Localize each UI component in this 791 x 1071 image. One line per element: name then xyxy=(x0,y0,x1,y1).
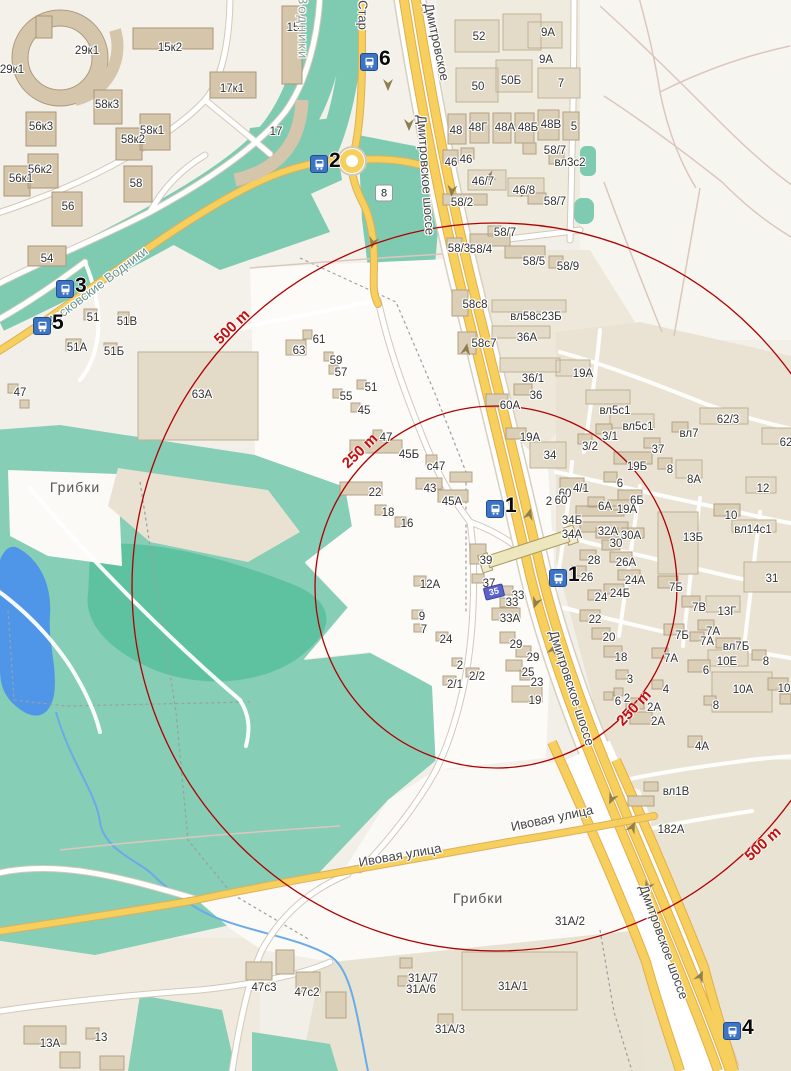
building-label: 34Б xyxy=(562,515,582,527)
bus-icon xyxy=(549,569,567,587)
building-label: 51Б xyxy=(104,346,124,358)
building-label: 6 xyxy=(617,478,623,490)
building-label: 8 xyxy=(713,700,719,712)
building-label: вл58с23Б xyxy=(510,311,561,323)
building-label: 9 xyxy=(419,611,425,623)
building-label: 7 xyxy=(421,624,427,636)
building-label: 58/7 xyxy=(494,227,516,239)
building-label: 17 xyxy=(270,126,283,138)
building-label: 51 xyxy=(365,382,378,394)
building-label: 36 xyxy=(530,390,543,402)
building-label: 59 xyxy=(330,355,343,367)
bus-icon xyxy=(310,155,328,173)
building-label: 18 xyxy=(615,652,628,664)
building-label: 46 xyxy=(460,154,473,166)
street-label: Ивовая улица xyxy=(357,840,442,869)
building-label: 16 xyxy=(401,518,414,530)
building-label: 28 xyxy=(588,555,601,567)
building-label: 22 xyxy=(589,614,602,626)
building-label: 37 xyxy=(652,444,665,456)
building-label: 51А xyxy=(67,342,87,354)
building-label: 4 xyxy=(663,684,669,696)
building-label: 8 xyxy=(763,656,769,668)
building-label: 15к2 xyxy=(158,42,182,54)
building-label: 2/2 xyxy=(469,671,485,683)
building-label: 34А xyxy=(562,529,582,541)
building-label: 57 xyxy=(335,367,348,379)
building-label: 48 xyxy=(450,125,463,137)
building-label: 60А xyxy=(500,400,520,412)
building-label: 8 xyxy=(667,464,673,476)
building-label: 46 xyxy=(445,157,458,169)
building-label: 36/1 xyxy=(522,373,544,385)
building-label: вл1В xyxy=(663,786,690,798)
building-label: 4/1 xyxy=(573,483,589,495)
building-label: 24Б xyxy=(610,588,630,600)
building-label: 58к3 xyxy=(95,99,119,111)
distance-label: 250 m xyxy=(339,430,381,472)
transit-stop-number: 3 xyxy=(75,274,87,298)
building-label: 45Б xyxy=(399,449,419,461)
building-label: 29к1 xyxy=(75,45,99,57)
building-label: 56к3 xyxy=(29,121,53,133)
building-label: с47 xyxy=(427,461,446,473)
building-label: вл3с2 xyxy=(554,157,585,169)
building-label: 4А xyxy=(695,741,709,753)
street-label: Дмитровское xyxy=(421,2,452,82)
map-view[interactable]: 29к129к115к21517к11758к358к158к256к356к2… xyxy=(0,0,791,1071)
building-label: 3/2 xyxy=(582,441,598,453)
building-label: 63А xyxy=(192,389,212,401)
building-label: 3 xyxy=(627,674,633,686)
building-label: 62 xyxy=(780,437,791,449)
street-label: Стар xyxy=(356,0,371,30)
transit-stop-number: 1 xyxy=(505,494,517,518)
building-label: 22 xyxy=(369,487,382,499)
building-label: 47 xyxy=(14,387,27,399)
building-label: 58 xyxy=(130,178,143,190)
building-label: 39 xyxy=(480,555,493,567)
building-label: 58с8 xyxy=(463,299,488,311)
building-label: 13Б xyxy=(683,532,703,544)
building-label: 46/7 xyxy=(472,176,494,188)
building-label: 19 xyxy=(529,695,542,707)
road-number-badge: 8 xyxy=(375,185,393,202)
building-label: 58/5 xyxy=(523,256,545,268)
building-label: 47с3 xyxy=(252,982,277,994)
building-label: 63 xyxy=(293,345,306,357)
building-label: 2А xyxy=(651,716,665,728)
building-label: 58к2 xyxy=(121,134,145,146)
building-label: 48В xyxy=(541,119,561,131)
building-label: 56 xyxy=(62,201,75,213)
building-label: 31А/6 xyxy=(406,984,436,996)
bus-icon xyxy=(360,53,378,71)
building-label: 47с2 xyxy=(295,987,320,999)
distance-label: 500 m xyxy=(742,823,785,864)
building-label: вл7 xyxy=(680,428,699,440)
building-label: 12А xyxy=(420,579,440,591)
building-label: 45А xyxy=(442,496,462,508)
bus-icon xyxy=(56,280,74,298)
building-label: 7А xyxy=(700,636,714,648)
building-label: 9А xyxy=(539,54,553,66)
building-label: 32А xyxy=(598,526,618,538)
building-label: 10Е xyxy=(717,656,737,668)
building-label: 30 xyxy=(610,538,623,550)
building-label: 7В xyxy=(692,602,706,614)
building-label: 31А/1 xyxy=(498,981,528,993)
place-label: Грибки xyxy=(453,890,503,906)
building-label: 31А/3 xyxy=(435,1024,465,1036)
building-label: 19Б xyxy=(627,461,647,473)
building-label: 18 xyxy=(382,507,395,519)
building-label: 12 xyxy=(757,483,770,495)
bus-icon xyxy=(723,1022,741,1040)
bus-icon xyxy=(33,317,51,335)
building-label: 34 xyxy=(544,450,557,462)
distance-label: 500 m xyxy=(211,306,253,348)
building-label: 19А xyxy=(617,504,637,516)
building-label: 23 xyxy=(531,677,544,689)
building-label: 9А xyxy=(541,27,555,39)
bus-icon xyxy=(486,500,504,518)
building-label: 2 xyxy=(546,496,552,508)
building-label: 48Г xyxy=(468,122,487,134)
building-label: 29 xyxy=(527,652,540,664)
building-label: 54 xyxy=(41,253,54,265)
building-label: 50 xyxy=(472,81,485,93)
building-label: 29к1 xyxy=(0,64,24,76)
building-label: 10 xyxy=(778,683,791,695)
building-label: вл5с1 xyxy=(599,405,630,417)
building-label: 6А xyxy=(598,501,612,513)
building-label: 51В xyxy=(117,316,137,328)
transit-stop-number: 1 xyxy=(568,563,580,587)
transit-stop-number: 5 xyxy=(52,311,64,335)
building-label: 8А xyxy=(687,474,701,486)
building-label: 58/7 xyxy=(544,145,566,157)
building-label: 36А xyxy=(517,332,537,344)
building-label: 2 xyxy=(457,660,463,672)
building-label: 20 xyxy=(603,632,616,644)
building-label: 62/3 xyxy=(717,414,739,426)
building-label: 6 xyxy=(703,665,709,677)
building-label: 19А xyxy=(520,432,540,444)
building-label: 6 xyxy=(615,696,621,708)
transit-stop-number: 6 xyxy=(379,47,391,71)
building-label: 61 xyxy=(313,334,326,346)
building-label: 45 xyxy=(358,405,371,417)
building-label: 58/4 xyxy=(470,244,492,256)
building-label: 29 xyxy=(510,639,523,651)
building-label: 33 xyxy=(506,597,519,609)
building-label: 58/7 xyxy=(544,196,566,208)
building-label: 31 xyxy=(766,573,779,585)
building-label: 58/3 xyxy=(448,243,470,255)
building-label: 7 xyxy=(558,78,564,90)
building-label: 30А xyxy=(621,530,641,542)
building-label: 43 xyxy=(424,483,437,495)
transit-stop-number: 2 xyxy=(329,149,341,173)
building-label: 50Б xyxy=(501,75,521,87)
building-label: 5 xyxy=(571,121,577,133)
building-label: 26А xyxy=(616,557,636,569)
building-label: 46/8 xyxy=(513,185,535,197)
building-label: 58с7 xyxy=(472,338,497,350)
building-label: 60 xyxy=(555,495,568,507)
building-label: 24 xyxy=(595,592,608,604)
street-label: Водники xyxy=(296,0,311,60)
building-label: 7Б xyxy=(675,630,689,642)
building-label: 26 xyxy=(581,572,594,584)
street-label: Дмитровское шоссе xyxy=(414,114,437,235)
transit-stop-number: 4 xyxy=(742,1016,754,1040)
building-label: 7А xyxy=(664,653,678,665)
building-label: 47 xyxy=(380,432,393,444)
building-label: 55 xyxy=(340,391,353,403)
labels-layer: 29к129к115к21517к11758к358к158к256к356к2… xyxy=(0,0,791,1071)
building-label: 24А xyxy=(625,575,645,587)
place-label: Грибки xyxy=(50,479,100,495)
building-label: 13Г xyxy=(717,606,736,618)
building-label: 33А xyxy=(500,613,520,625)
building-label: 52 xyxy=(473,31,486,43)
building-label: 7Б xyxy=(669,582,683,594)
building-label: 58/9 xyxy=(557,261,579,273)
building-label: 182А xyxy=(658,824,685,836)
street-label: Дмитровское шоссе xyxy=(636,883,691,1001)
building-label: 13 xyxy=(95,1032,108,1044)
street-label: Ивовая улица xyxy=(509,802,594,834)
building-label: 51 xyxy=(87,312,100,324)
building-label: 3/1 xyxy=(602,431,618,443)
building-label: вл14с1 xyxy=(734,524,772,536)
building-label: 19А xyxy=(573,368,593,380)
building-label: вл5с1 xyxy=(622,421,653,433)
street-label: Дмитровское шоссе xyxy=(546,628,597,747)
building-label: 58/2 xyxy=(451,197,473,209)
building-label: 48Б xyxy=(518,122,538,134)
building-label: 17к1 xyxy=(220,83,244,95)
building-label: 13А xyxy=(40,1038,60,1050)
building-label: 10А xyxy=(733,684,753,696)
building-label: 31А/2 xyxy=(555,916,585,928)
building-label: 10 xyxy=(725,510,738,522)
building-label: 2/1 xyxy=(447,679,463,691)
building-label: 24 xyxy=(440,634,453,646)
building-label: 48А xyxy=(495,122,515,134)
building-label: 56к1 xyxy=(9,173,33,185)
building-label: вл7Б xyxy=(723,641,750,653)
